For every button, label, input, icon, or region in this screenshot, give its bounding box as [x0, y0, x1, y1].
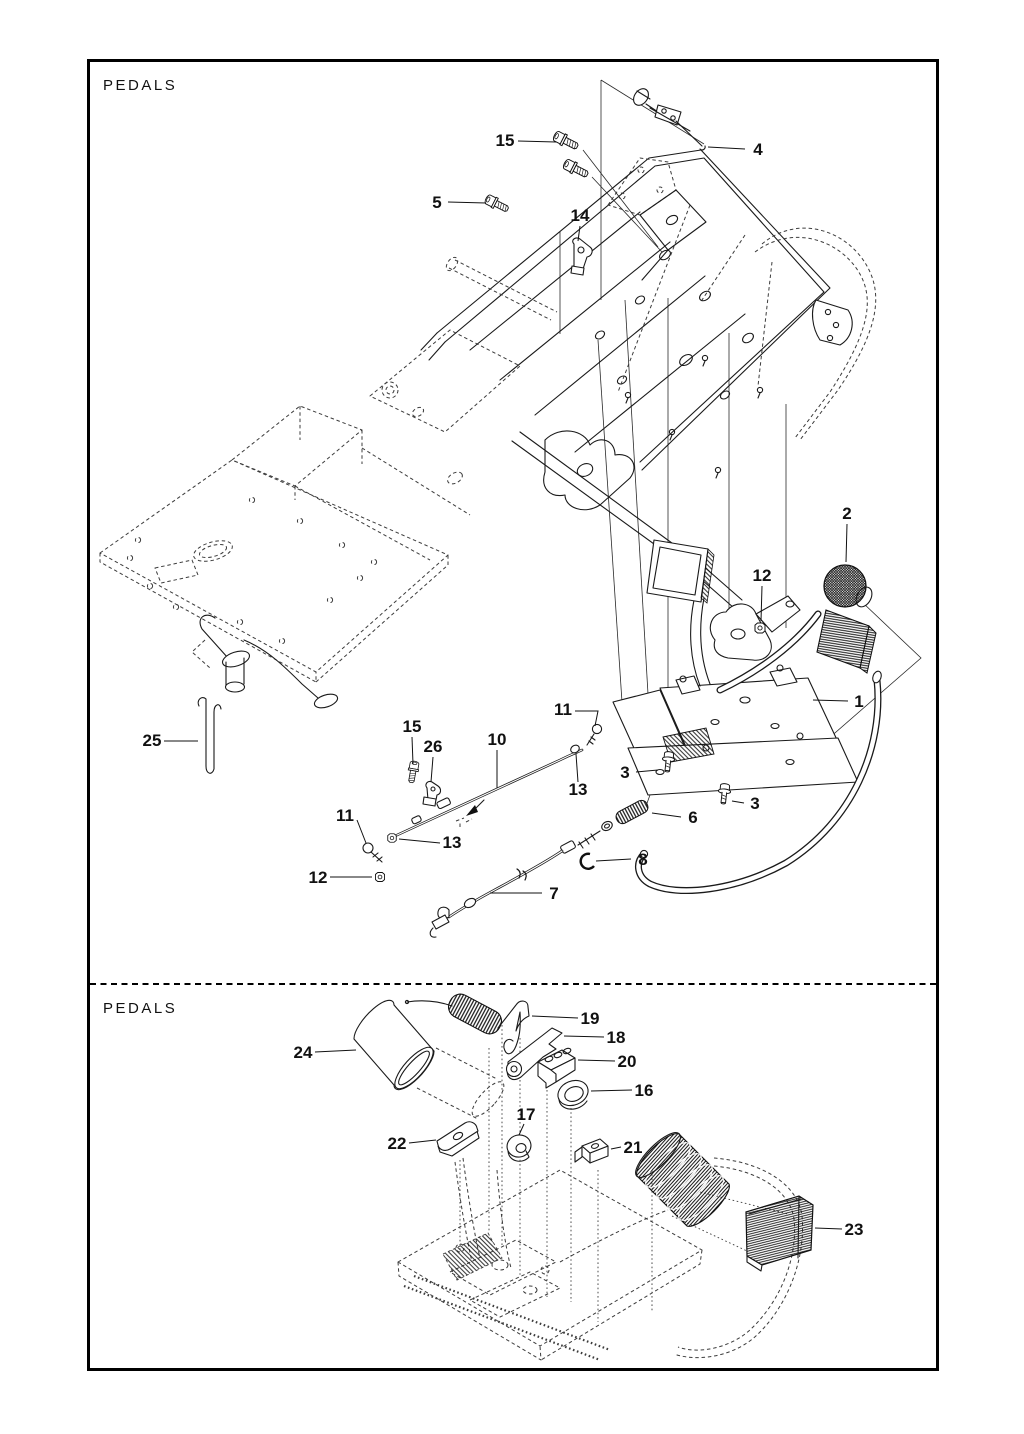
callout-15b: 15	[403, 717, 422, 736]
hardware-top	[444, 130, 662, 320]
callout-19: 19	[581, 1009, 600, 1028]
callout-1: 1	[854, 692, 863, 711]
section-title-top: PEDALS	[103, 77, 177, 94]
callout-2: 2	[842, 504, 851, 523]
callout-3: 3	[620, 763, 629, 782]
callout-18: 18	[607, 1028, 626, 1047]
ghost-chassis	[100, 330, 520, 710]
callout-23: 23	[845, 1220, 864, 1239]
callout-12b: 12	[309, 868, 328, 887]
throttle-cable-upper	[198, 698, 601, 882]
callout-17: 17	[517, 1105, 536, 1124]
callout-15: 15	[496, 131, 515, 150]
callout-7: 7	[549, 884, 558, 903]
callout-3b: 3	[750, 794, 759, 813]
callout-24: 24	[294, 1043, 313, 1062]
callout-8: 8	[638, 850, 647, 869]
callout-5: 5	[432, 193, 441, 212]
callout-16: 16	[635, 1081, 654, 1100]
callout-26: 26	[424, 737, 443, 756]
pedal-assembly	[613, 540, 883, 891]
diagram-page: PEDALS PEDALS	[0, 0, 1024, 1434]
brake-cable-lower	[430, 798, 650, 937]
callout-4: 4	[753, 140, 763, 159]
callout-11: 11	[554, 700, 572, 719]
callout-13: 13	[569, 780, 588, 799]
callout-6: 6	[688, 808, 697, 827]
callout-12: 12	[753, 566, 772, 585]
part-4-linkage	[631, 86, 706, 150]
callout-22: 22	[388, 1134, 407, 1153]
bottom-parts	[354, 990, 813, 1271]
ghost-pedal-assembly	[398, 1025, 803, 1360]
callout-14: 14	[571, 206, 590, 225]
callout-10: 10	[488, 730, 507, 749]
callout-25: 25	[143, 731, 162, 750]
callout-20: 20	[618, 1052, 637, 1071]
section-title-bottom: PEDALS	[103, 1000, 177, 1017]
callout-13b: 13	[443, 833, 462, 852]
pedals-diagram: PEDALS PEDALS	[0, 0, 1024, 1434]
callout-21: 21	[624, 1138, 643, 1157]
callout-11b: 11	[336, 806, 354, 825]
